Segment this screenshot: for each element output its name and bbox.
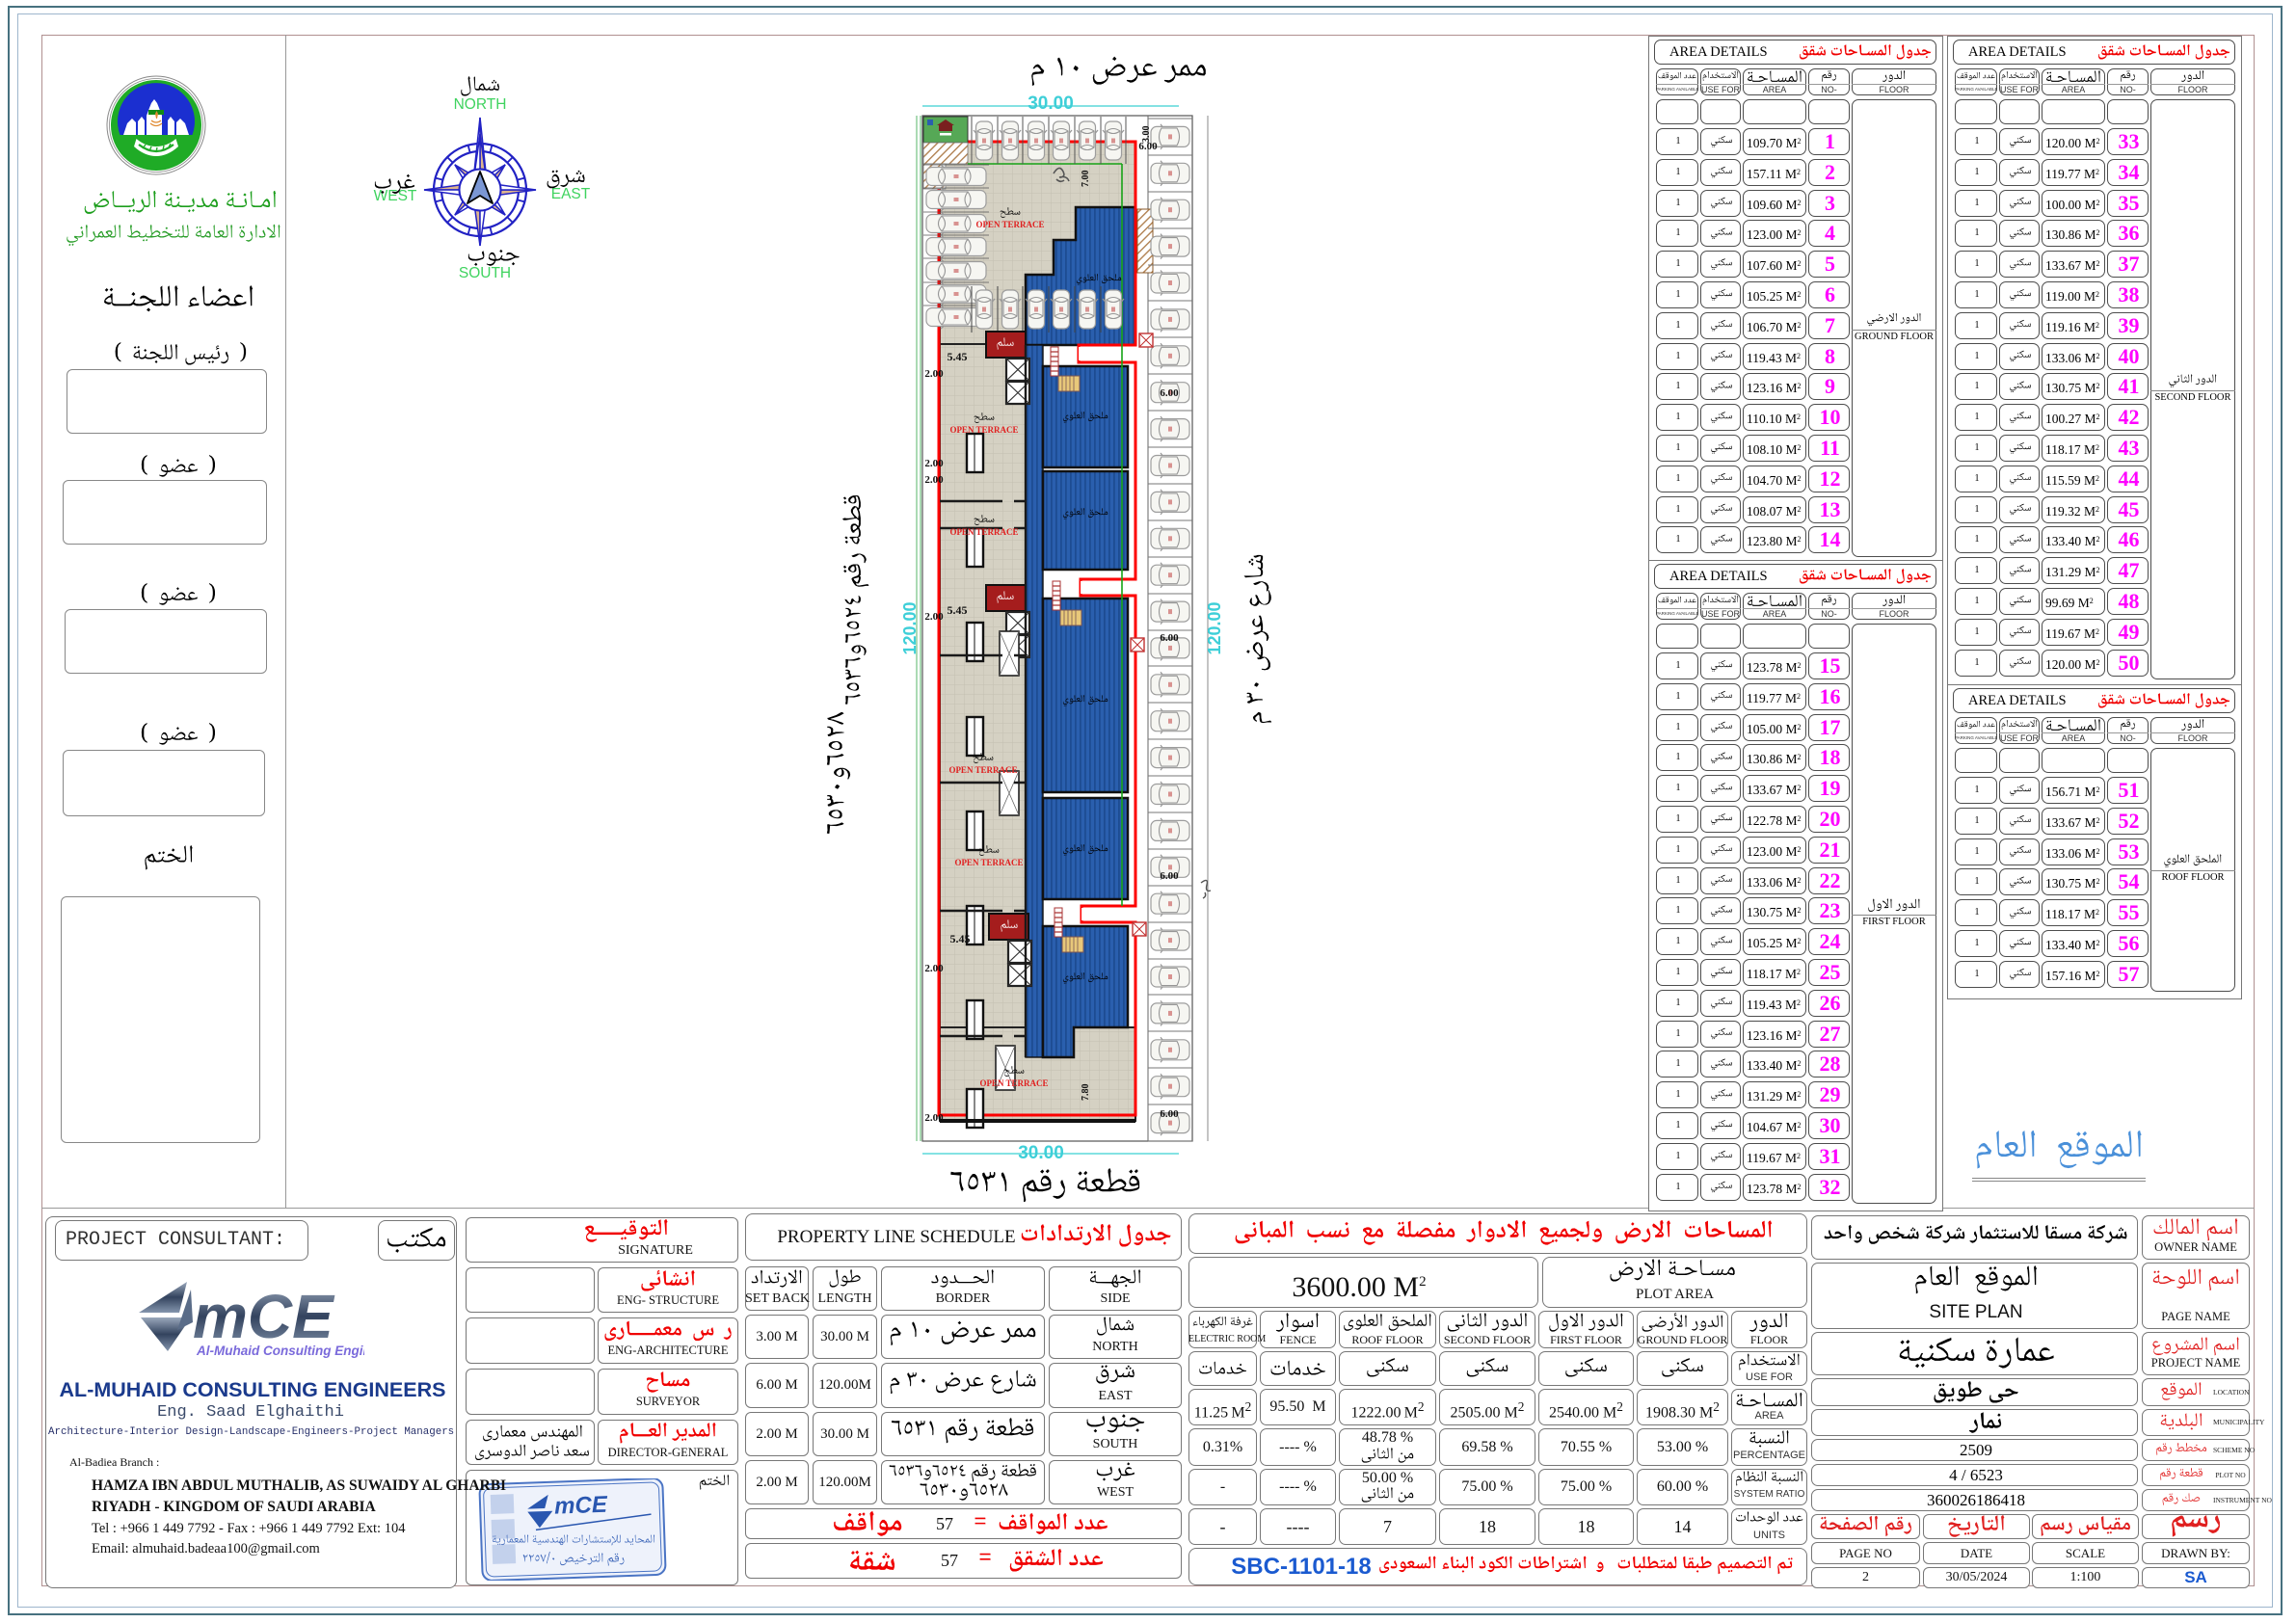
svg-text:mCE: mCE: [554, 1492, 609, 1520]
svg-text:mCE: mCE: [193, 1282, 335, 1351]
svg-text:Al-Muhaid Consulting Engineers: Al-Muhaid Consulting Engineers: [196, 1344, 364, 1358]
